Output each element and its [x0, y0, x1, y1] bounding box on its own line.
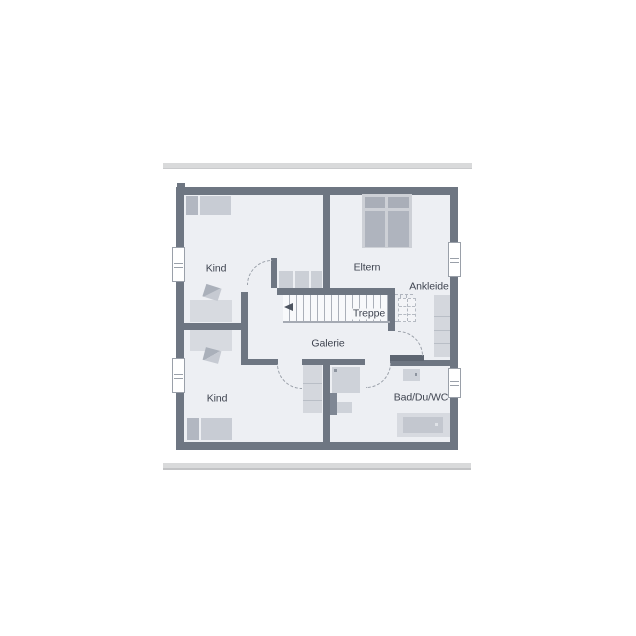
double-bed-pillow-right [388, 197, 409, 208]
wall-stairs-top [277, 288, 395, 295]
room-label-kind-top: Kind [206, 264, 227, 275]
desk-kind-top [190, 300, 232, 322]
sink-small [337, 402, 352, 413]
wall-pier [330, 393, 337, 415]
wall-kind-bad [323, 363, 330, 442]
wall-bottom-a [248, 359, 278, 365]
shelf-row-3 [311, 271, 322, 288]
double-bed-mattress-left [365, 211, 385, 247]
bathtub [397, 413, 450, 437]
outer-wall-corner-stub [177, 183, 185, 188]
top-divider-bar [163, 163, 472, 169]
double-bed-pillow-left [365, 197, 385, 208]
wardrobe-ankleide [434, 295, 450, 357]
wall-stairs-right [388, 295, 395, 331]
bed-pillow-kind-bottom [187, 418, 199, 440]
wall-kind-galerie [241, 292, 248, 365]
window-right-lower [448, 368, 461, 398]
wall-kind-eltern [323, 195, 330, 288]
wall-kind-kind [184, 323, 241, 330]
sink-bad [403, 369, 420, 381]
room-label-treppe: Treppe [351, 309, 387, 320]
stairs-railing [283, 321, 390, 323]
shelf-ankleide [398, 298, 416, 322]
bed-pillow-kind-top [186, 196, 198, 215]
bottom-divider-bar [163, 463, 471, 470]
room-label-ankleide: Ankleide [409, 282, 448, 293]
floor-plan-canvas: Kind Eltern Ankleide Treppe Galerie Kind… [0, 0, 636, 636]
window-left-upper [172, 247, 185, 282]
closet-column [303, 365, 322, 413]
shelf-row-2 [295, 271, 309, 288]
room-label-kind-bottom: Kind [207, 394, 228, 405]
stairs-direction-arrow-icon [284, 303, 293, 311]
shower [332, 367, 360, 393]
room-label-bad: Bad/Du/WC [394, 393, 449, 404]
room-label-eltern: Eltern [354, 263, 381, 274]
bed-kind-bottom [201, 418, 232, 440]
room-label-galerie: Galerie [311, 339, 344, 350]
double-bed-mattress-right [388, 211, 409, 247]
window-left-lower [172, 358, 185, 393]
window-right-upper [448, 242, 461, 277]
bed-kind-top [200, 196, 231, 215]
shelf-row-1 [279, 271, 293, 288]
